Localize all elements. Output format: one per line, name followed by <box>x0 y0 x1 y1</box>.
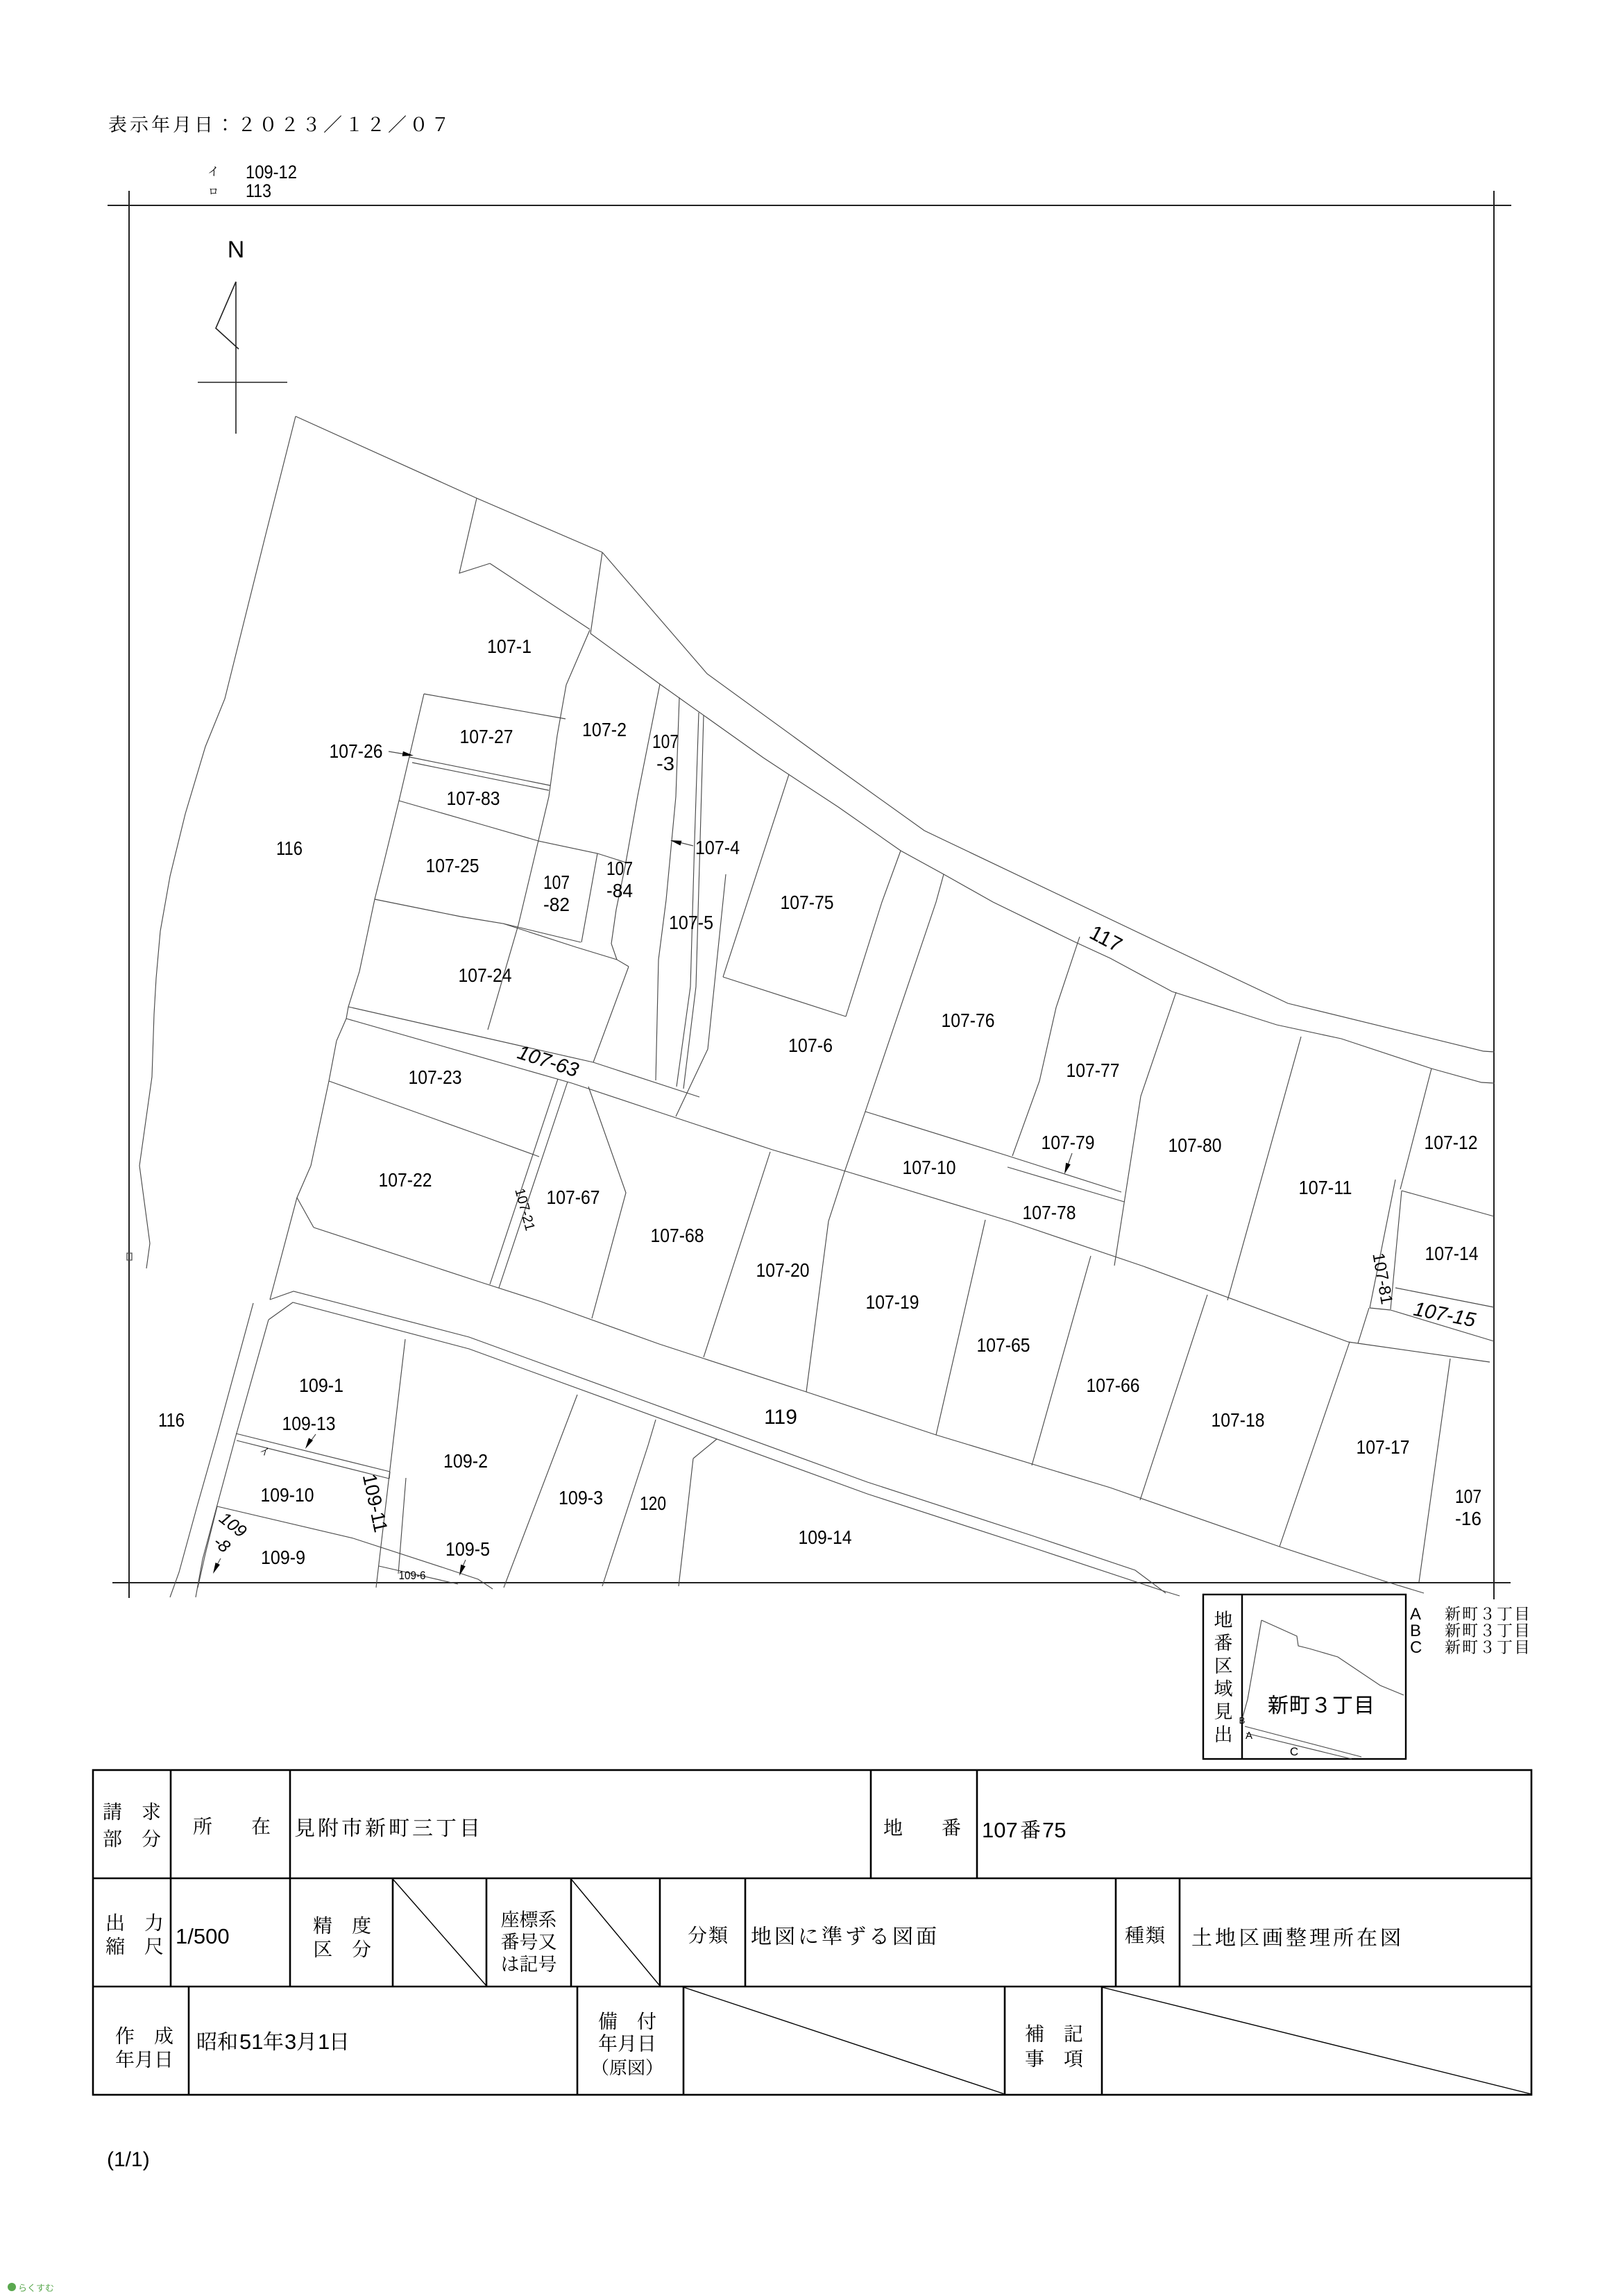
svg-text:107-78: 107-78 <box>1023 1202 1076 1223</box>
svg-text:C: C <box>1290 1745 1298 1758</box>
svg-text:109-12: 109-12 <box>246 162 297 182</box>
svg-text:107-5: 107-5 <box>669 912 713 933</box>
svg-text:109-13: 109-13 <box>282 1413 336 1434</box>
svg-text:-82: -82 <box>543 894 570 915</box>
svg-text:109-10: 109-10 <box>261 1484 314 1506</box>
svg-text:107-23: 107-23 <box>409 1066 462 1088</box>
svg-text:119: 119 <box>764 1406 797 1429</box>
svg-text:75: 75 <box>1042 1818 1066 1842</box>
svg-text:107-79: 107-79 <box>1042 1132 1095 1153</box>
svg-text:107-67: 107-67 <box>547 1187 600 1208</box>
svg-text:116: 116 <box>158 1409 185 1431</box>
svg-text:107-12: 107-12 <box>1425 1132 1478 1153</box>
svg-text:107-83: 107-83 <box>447 788 500 809</box>
svg-text:116: 116 <box>276 837 303 859</box>
svg-text:107: 107 <box>652 731 679 752</box>
svg-text:107: 107 <box>982 1818 1018 1842</box>
svg-text:109-6: 109-6 <box>399 1569 426 1582</box>
svg-text:107-76: 107-76 <box>942 1010 995 1031</box>
svg-text:A: A <box>1246 1730 1252 1742</box>
svg-text:107-20: 107-20 <box>756 1259 810 1281</box>
svg-text:107: 107 <box>543 871 570 893</box>
svg-text:107-11: 107-11 <box>1299 1177 1352 1198</box>
svg-text:107-22: 107-22 <box>379 1169 432 1191</box>
svg-text:1: 1 <box>318 2030 330 2054</box>
svg-text:107: 107 <box>606 858 633 879</box>
svg-text:B: B <box>1410 1622 1421 1640</box>
svg-text:(1/1): (1/1) <box>107 2148 150 2171</box>
svg-text:107-27: 107-27 <box>460 726 513 747</box>
svg-text:107-1: 107-1 <box>487 636 532 657</box>
svg-text:107-10: 107-10 <box>903 1157 956 1178</box>
svg-text:C: C <box>1410 1638 1422 1657</box>
svg-text:107: 107 <box>1455 1486 1481 1507</box>
svg-text:-3: -3 <box>656 753 674 774</box>
svg-text:A: A <box>1410 1605 1421 1624</box>
svg-text:107-19: 107-19 <box>866 1291 919 1313</box>
svg-text:107-80: 107-80 <box>1169 1134 1222 1156</box>
svg-text:109-3: 109-3 <box>559 1487 603 1508</box>
svg-text:107-68: 107-68 <box>651 1225 704 1246</box>
svg-text:109-14: 109-14 <box>799 1527 852 1548</box>
svg-text:-16: -16 <box>1455 1508 1481 1529</box>
svg-text:107-6: 107-6 <box>788 1035 833 1056</box>
svg-text:107-66: 107-66 <box>1087 1375 1140 1396</box>
svg-text:107-26: 107-26 <box>330 740 383 762</box>
svg-text:120: 120 <box>640 1493 666 1514</box>
svg-text:113: 113 <box>246 180 271 201</box>
svg-text:107-24: 107-24 <box>459 964 512 986</box>
svg-text:107-65: 107-65 <box>977 1334 1030 1356</box>
svg-text:-84: -84 <box>606 880 633 901</box>
svg-text:107-17: 107-17 <box>1357 1436 1410 1458</box>
svg-text:109-1: 109-1 <box>299 1375 343 1396</box>
svg-text:N: N <box>228 237 245 263</box>
svg-text:107-2: 107-2 <box>582 719 627 740</box>
svg-text:51: 51 <box>239 2030 263 2054</box>
svg-text:3: 3 <box>284 2030 296 2054</box>
svg-text:1/500: 1/500 <box>176 1924 230 1948</box>
svg-text:107-18: 107-18 <box>1212 1409 1265 1431</box>
svg-text:107-4: 107-4 <box>695 837 740 858</box>
svg-text:107-14: 107-14 <box>1425 1243 1479 1264</box>
svg-text:109-5: 109-5 <box>445 1538 490 1560</box>
svg-text:107-75: 107-75 <box>781 892 834 913</box>
svg-text:107-25: 107-25 <box>426 855 479 876</box>
svg-text:109-9: 109-9 <box>261 1547 305 1568</box>
svg-text:107-77: 107-77 <box>1067 1060 1120 1081</box>
svg-text:109-2: 109-2 <box>443 1450 488 1472</box>
svg-text:B: B <box>1239 1715 1246 1726</box>
